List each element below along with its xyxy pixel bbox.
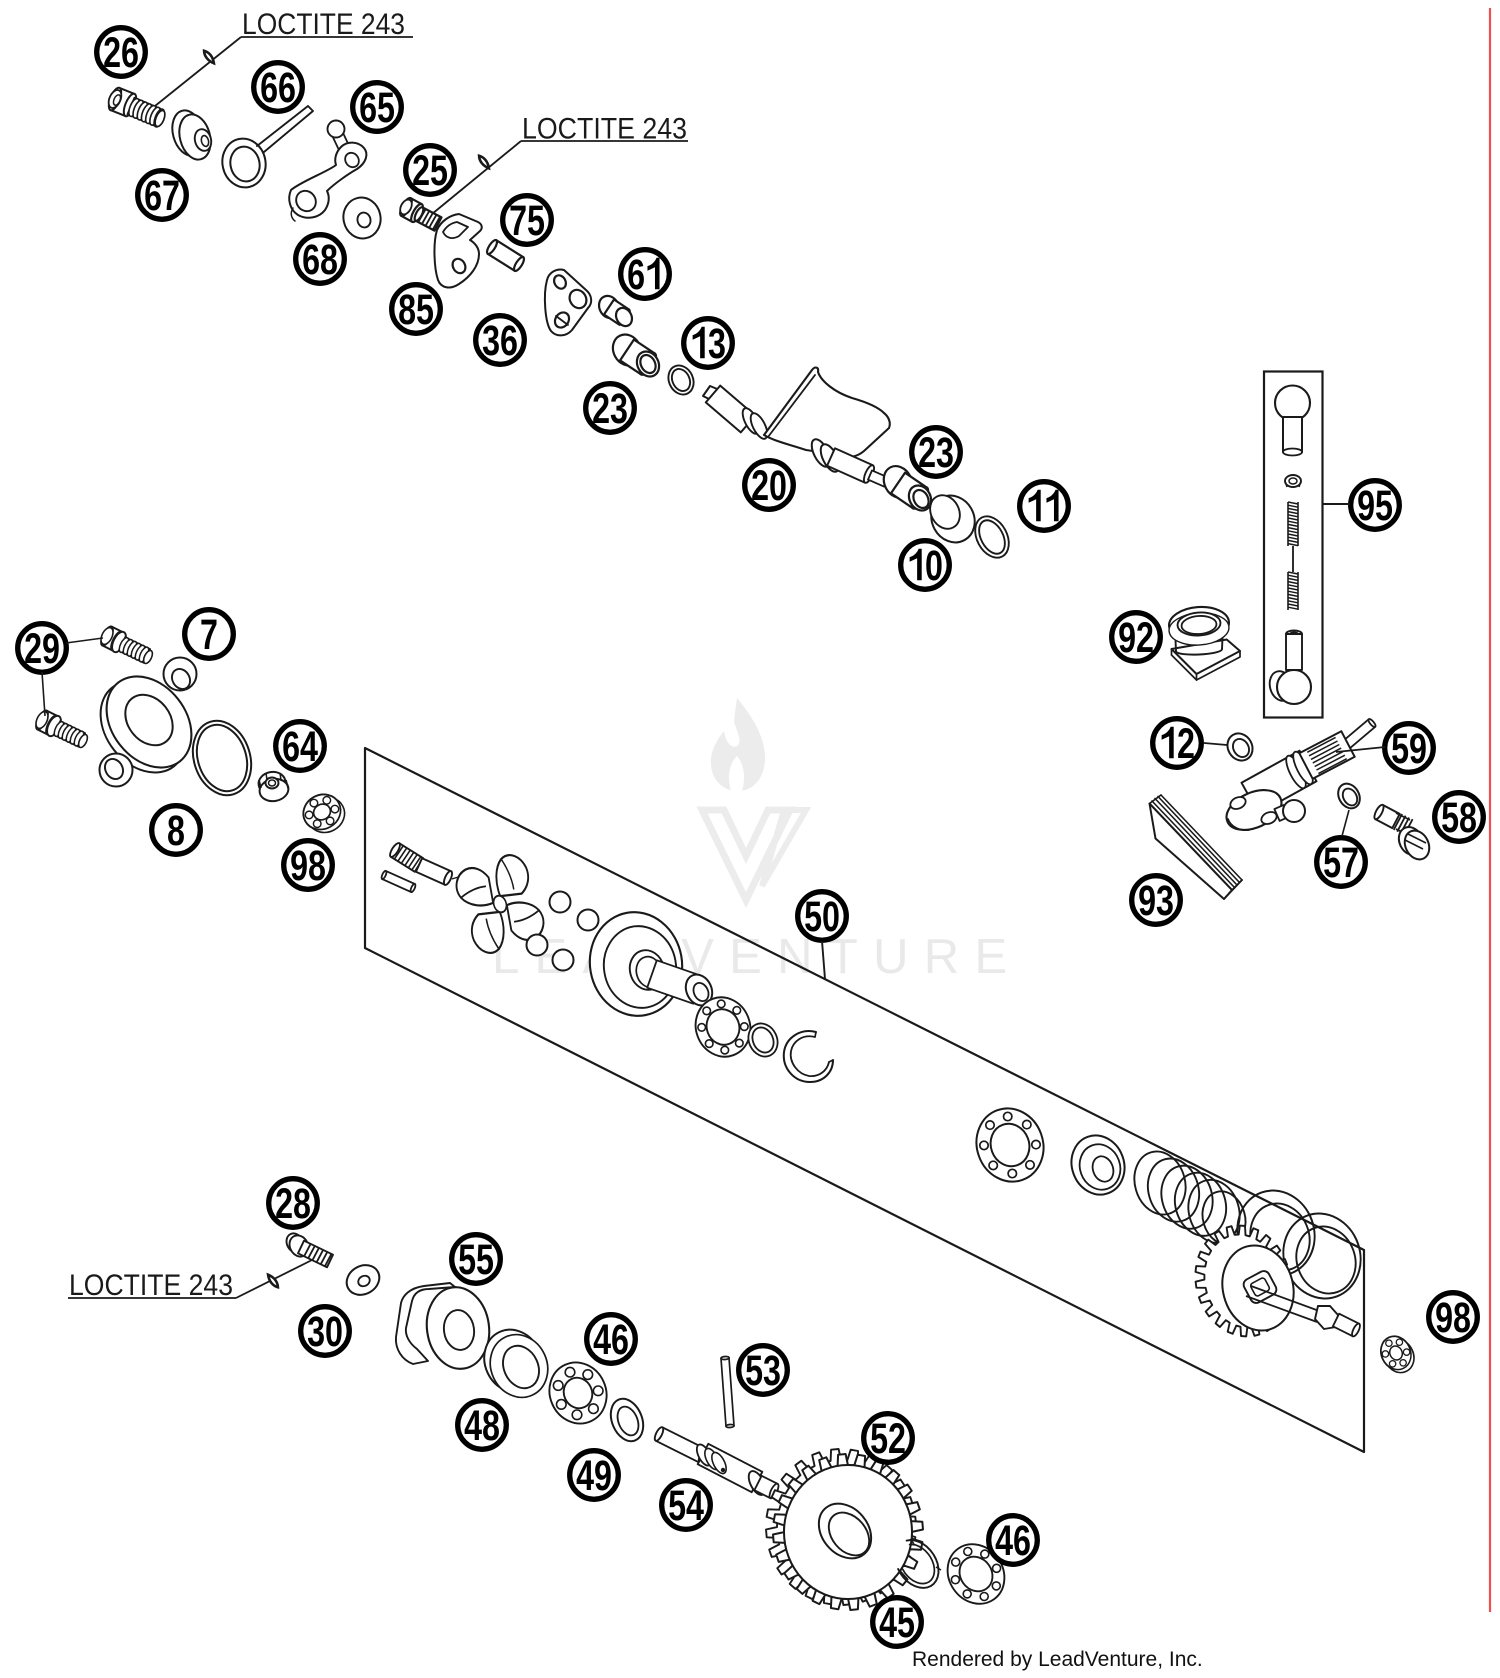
svg-text:9: 9 [290, 843, 308, 891]
svg-text:6: 6 [278, 65, 296, 113]
svg-text:8: 8 [308, 843, 326, 891]
svg-text:8: 8 [320, 237, 338, 285]
svg-text:0: 0 [325, 1309, 343, 1357]
svg-text:6: 6 [260, 65, 278, 113]
svg-text:5: 5 [430, 148, 448, 196]
svg-text:3: 3 [708, 321, 726, 369]
svg-text:3: 3 [307, 1309, 325, 1357]
svg-text:6: 6 [282, 724, 300, 772]
svg-text:7: 7 [162, 173, 180, 221]
svg-text:6: 6 [611, 1317, 629, 1365]
svg-text:6: 6 [302, 237, 320, 285]
svg-text:LOCTITE 243: LOCTITE 243 [69, 1269, 233, 1302]
svg-text:2: 2 [1136, 615, 1154, 663]
svg-text:7: 7 [1341, 840, 1359, 888]
svg-text:2: 2 [275, 1181, 293, 1229]
svg-text:5: 5 [1375, 483, 1393, 531]
svg-text:4: 4 [879, 1600, 897, 1648]
svg-text:Rendered by LeadVenture, Inc.: Rendered by LeadVenture, Inc. [912, 1648, 1203, 1671]
svg-text:4: 4 [686, 1483, 704, 1531]
svg-text:5: 5 [458, 1237, 476, 1285]
svg-text:3: 3 [763, 1348, 781, 1396]
svg-text:LOCTITE 243: LOCTITE 243 [242, 8, 405, 41]
svg-text:8: 8 [398, 287, 416, 335]
svg-text:5: 5 [1323, 840, 1341, 888]
svg-text:9: 9 [1435, 1295, 1453, 1343]
svg-text:2: 2 [412, 148, 430, 196]
svg-text:5: 5 [1441, 795, 1459, 843]
svg-text:8: 8 [167, 808, 185, 856]
svg-text:5: 5 [745, 1348, 763, 1396]
svg-text:2: 2 [592, 386, 610, 434]
svg-text:9: 9 [1409, 726, 1427, 774]
svg-text:8: 8 [482, 1403, 500, 1451]
svg-text:9: 9 [42, 626, 60, 674]
svg-text:2: 2 [1177, 721, 1195, 769]
svg-text:5: 5 [1391, 726, 1409, 774]
svg-text:5: 5 [377, 85, 395, 133]
svg-text:2: 2 [888, 1416, 906, 1464]
svg-text:6: 6 [359, 85, 377, 133]
svg-text:6: 6 [144, 173, 162, 221]
svg-text:2: 2 [918, 430, 936, 478]
svg-text:9: 9 [1357, 483, 1375, 531]
svg-text:5: 5 [416, 287, 434, 335]
svg-text:8: 8 [1453, 1295, 1471, 1343]
svg-text:5: 5 [668, 1483, 686, 1531]
svg-text:8: 8 [1459, 795, 1477, 843]
svg-text:6: 6 [500, 318, 518, 366]
svg-text:2: 2 [103, 30, 121, 78]
svg-text:6: 6 [627, 252, 645, 300]
svg-text:3: 3 [1156, 878, 1174, 926]
svg-text:4: 4 [300, 724, 318, 772]
svg-text:2: 2 [24, 626, 42, 674]
svg-text:8: 8 [293, 1181, 311, 1229]
svg-text:0: 0 [769, 463, 787, 511]
svg-text:5: 5 [897, 1600, 915, 1648]
svg-text:5: 5 [870, 1416, 888, 1464]
svg-text:4: 4 [593, 1317, 611, 1365]
svg-text:9: 9 [1138, 878, 1156, 926]
svg-text:9: 9 [594, 1453, 612, 1501]
svg-text:4: 4 [464, 1403, 482, 1451]
svg-text:3: 3 [610, 386, 628, 434]
svg-text:5: 5 [476, 1237, 494, 1285]
svg-text:3: 3 [482, 318, 500, 366]
svg-text:4: 4 [576, 1453, 594, 1501]
svg-text:3: 3 [936, 430, 954, 478]
svg-text:7: 7 [509, 198, 527, 246]
svg-text:2: 2 [751, 463, 769, 511]
svg-text:4: 4 [995, 1518, 1013, 1566]
svg-text:5: 5 [804, 894, 822, 942]
svg-text:9: 9 [1118, 615, 1136, 663]
svg-text:0: 0 [925, 543, 943, 591]
svg-text:6: 6 [1013, 1518, 1031, 1566]
svg-text:6: 6 [121, 30, 139, 78]
svg-text:7: 7 [200, 612, 218, 660]
svg-text:0: 0 [822, 894, 840, 942]
svg-text:5: 5 [527, 198, 545, 246]
